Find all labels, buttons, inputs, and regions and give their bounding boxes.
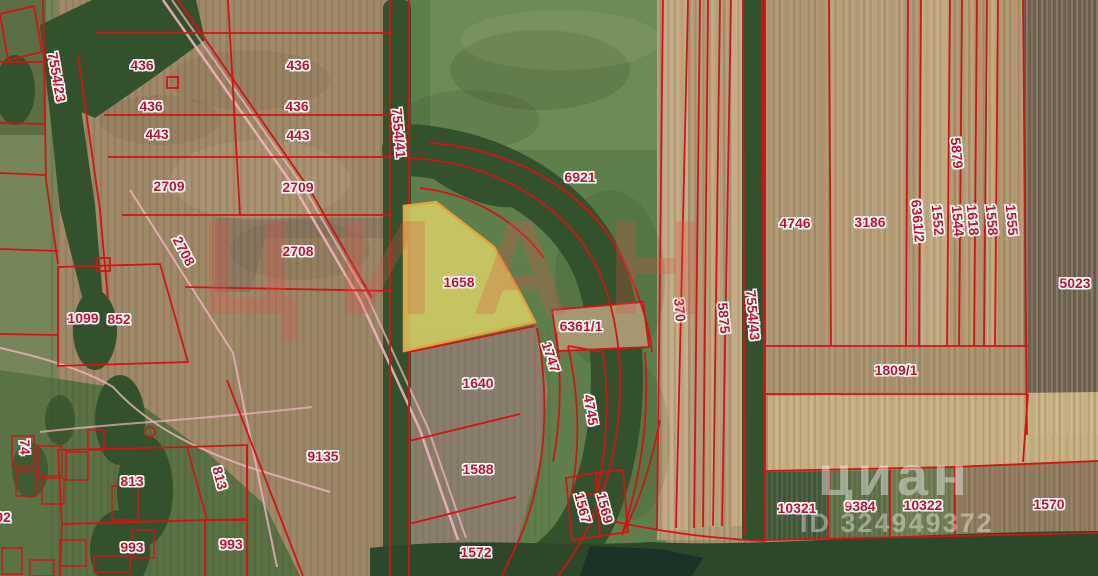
parcel-label-10322[interactable]: 10322 (904, 497, 943, 513)
parcel-label-5875[interactable]: 5875 (715, 302, 734, 334)
parcel-label-1569[interactable]: 1569 (593, 491, 617, 525)
parcel-label-1640[interactable]: 1640 (462, 375, 493, 391)
parcel-label-7554-23[interactable]: 7554/23 (45, 51, 70, 104)
parcel-label-1552[interactable]: 1552 (929, 204, 948, 236)
cadastral-map[interactable]: 7554/23436436436436443443270927092708270… (0, 0, 1098, 576)
parcel-label-1809-1[interactable]: 1809/1 (875, 362, 918, 378)
parcel-label-813[interactable]: 813 (209, 465, 231, 492)
parcel-label-436[interactable]: 436 (286, 57, 309, 73)
parcel-label-1572[interactable]: 1572 (460, 544, 491, 560)
parcel-label-1588[interactable]: 1588 (462, 461, 493, 477)
parcel-label-2709[interactable]: 2709 (153, 178, 184, 194)
parcel-label-1099[interactable]: 1099 (67, 310, 98, 326)
parcel-label-1618[interactable]: 1618 (964, 204, 983, 236)
parcel-label-74[interactable]: 74 (17, 439, 34, 455)
parcel-label-4745[interactable]: 4745 (580, 393, 601, 426)
parcel-label-6361-1[interactable]: 6361/1 (560, 318, 603, 334)
parcel-label-7554-43[interactable]: 7554/43 (743, 289, 763, 341)
parcel-label-1558[interactable]: 1558 (983, 204, 1002, 236)
parcel-label-92[interactable]: 92 (0, 509, 11, 525)
parcel-label-813[interactable]: 813 (120, 473, 143, 489)
parcel-label-10321[interactable]: 10321 (778, 500, 817, 516)
parcel-label-1567[interactable]: 1567 (571, 491, 595, 525)
parcel-label-4746[interactable]: 4746 (779, 215, 810, 231)
parcel-label-9384[interactable]: 9384 (844, 498, 875, 514)
parcel-label-9135[interactable]: 9135 (307, 448, 338, 464)
parcel-label-5879[interactable]: 5879 (948, 137, 967, 169)
parcel-label-436[interactable]: 436 (285, 98, 308, 114)
parcel-label-1555[interactable]: 1555 (1003, 204, 1022, 236)
parcel-label-852[interactable]: 852 (107, 311, 130, 327)
parcel-label-7554-41[interactable]: 7554/41 (389, 107, 409, 159)
parcel-label-2709[interactable]: 2709 (282, 179, 313, 195)
parcel-label-6921[interactable]: 6921 (564, 169, 595, 185)
parcel-labels-layer: 7554/23436436436436443443270927092708270… (0, 0, 1098, 576)
parcel-label-370[interactable]: 370 (671, 298, 689, 323)
parcel-label-3186[interactable]: 3186 (854, 214, 885, 230)
parcel-label-443[interactable]: 443 (286, 127, 309, 143)
parcel-label-6361-2[interactable]: 6361/2 (908, 199, 928, 243)
parcel-label-436[interactable]: 436 (139, 98, 162, 114)
parcel-label-993[interactable]: 993 (120, 539, 143, 555)
parcel-label-1570[interactable]: 1570 (1033, 496, 1064, 512)
parcel-label-5023[interactable]: 5023 (1059, 275, 1090, 291)
parcel-label-443[interactable]: 443 (145, 126, 168, 142)
parcel-label-993[interactable]: 993 (219, 536, 242, 552)
parcel-label-436[interactable]: 436 (130, 57, 153, 73)
parcel-label-1747[interactable]: 1747 (539, 340, 564, 375)
parcel-label-2708[interactable]: 2708 (282, 243, 313, 259)
parcel-label-1658[interactable]: 1658 (443, 274, 474, 290)
parcel-label-2708[interactable]: 2708 (170, 233, 199, 268)
